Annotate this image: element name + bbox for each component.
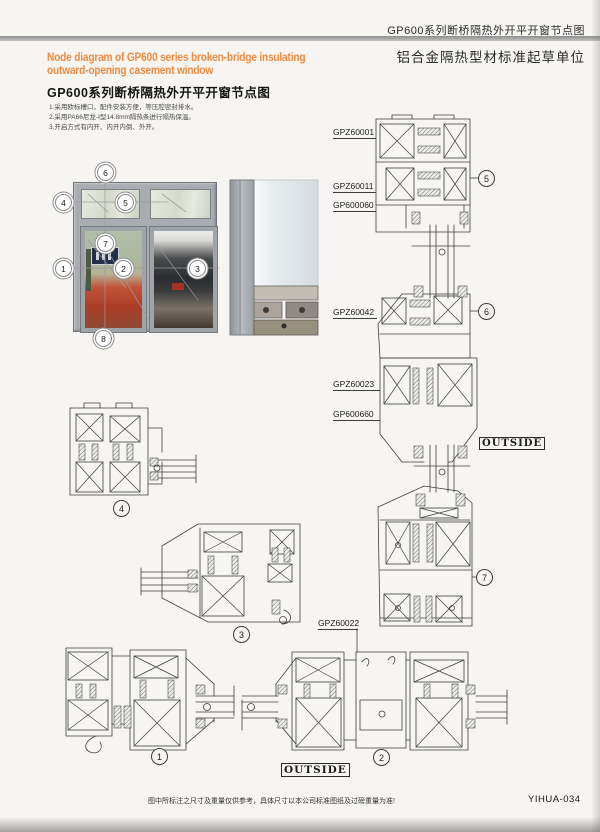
scan-edge-right [591, 0, 600, 832]
window-callout-8: 8 [95, 330, 112, 347]
callout-number: 2 [121, 264, 126, 274]
section-callout-4: 4 [113, 500, 130, 517]
window-callout-4: 4 [55, 194, 72, 211]
section-drawing-4 [70, 403, 196, 495]
window-callout-6: 6 [97, 164, 114, 181]
section-callout-3: 3 [233, 626, 250, 643]
label-gpz60011: GPZ60011 [333, 181, 376, 193]
section-callout-6: 6 [478, 303, 495, 320]
callout-number: 6 [103, 168, 108, 178]
label-gpz60042: GPZ60042 [333, 307, 377, 319]
window-callout-2: 2 [115, 260, 132, 277]
window-callout-7: 7 [97, 235, 114, 252]
callout-number: 5 [484, 174, 489, 184]
callout-number: 7 [103, 239, 108, 249]
window-callout-1: 1 [55, 260, 72, 277]
callout-number: 4 [61, 198, 66, 208]
outside-label-bottom: OUTSIDE [281, 763, 350, 777]
callout-number: 6 [484, 307, 489, 317]
scan-edge-bottom [0, 817, 600, 832]
callout-number: 7 [482, 573, 487, 583]
callout-number: 3 [195, 264, 200, 274]
callout-number: 2 [379, 753, 384, 763]
section-callout-7: 7 [476, 569, 493, 586]
cad-drawings [0, 0, 600, 832]
callout-number: 1 [157, 752, 162, 762]
window-callout-3: 3 [189, 260, 206, 277]
outside-label-middle: OUTSIDE [479, 437, 545, 450]
section-callout-5: 5 [478, 170, 495, 187]
callout-number: 5 [123, 198, 128, 208]
label-gpz60023: GPZ60023 [333, 379, 380, 391]
label-gpz60001: GPZ60001 [333, 127, 376, 139]
callout-number: 8 [101, 334, 106, 344]
footer-disclaimer: 图中所标注之尺寸及重量仅供参考，具体尺寸以本公司标准图纸及过磅重量为准! [148, 796, 395, 806]
section-callout-2: 2 [373, 749, 390, 766]
window-leader-lines [63, 180, 219, 332]
vertical-section-right-column [376, 115, 478, 626]
footer-page-code: YIHUA-034 [528, 794, 581, 805]
catalog-page: GP600系列断桥隔热外开平开窗节点图 铝合金隔热型材标准起草单位 Node d… [0, 0, 600, 832]
callout-number: 4 [119, 504, 124, 514]
window-callout-5: 5 [117, 194, 134, 211]
label-gp600060: GP600060 [333, 200, 376, 212]
label-gpz60022: GPZ60022 [318, 618, 358, 630]
label-gp600660: GP600660 [333, 409, 380, 421]
section-drawing-1 [66, 648, 278, 753]
callout-number: 1 [61, 264, 66, 274]
section-drawing-2 [276, 652, 507, 750]
section-callout-1: 1 [151, 748, 168, 765]
callout-number: 3 [239, 630, 244, 640]
